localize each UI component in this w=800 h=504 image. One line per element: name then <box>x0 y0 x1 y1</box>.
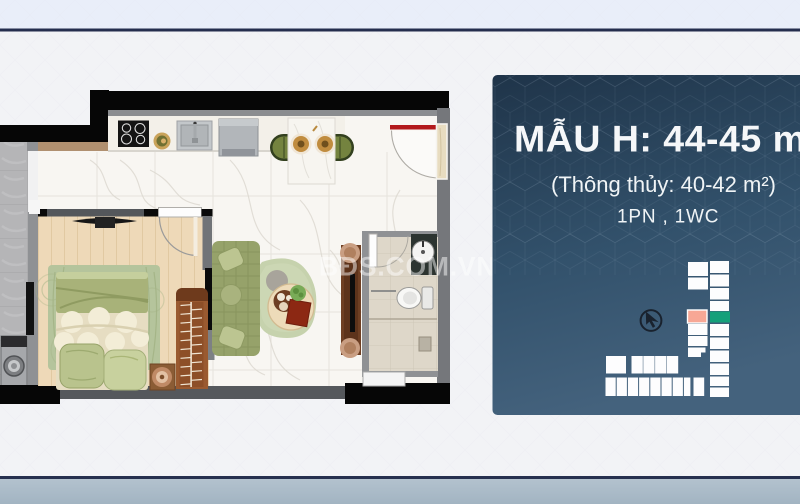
svg-text:1PN , 1WC: 1PN , 1WC <box>617 207 719 228</box>
svg-text:MẪU H: 44-45 m²: MẪU H: 44-45 m² <box>514 118 800 160</box>
svg-text:BĐS.COM.VN: BĐS.COM.VN <box>319 252 496 282</box>
svg-text:(Thông thủy: 40-42 m²): (Thông thủy: 40-42 m²) <box>551 172 776 197</box>
